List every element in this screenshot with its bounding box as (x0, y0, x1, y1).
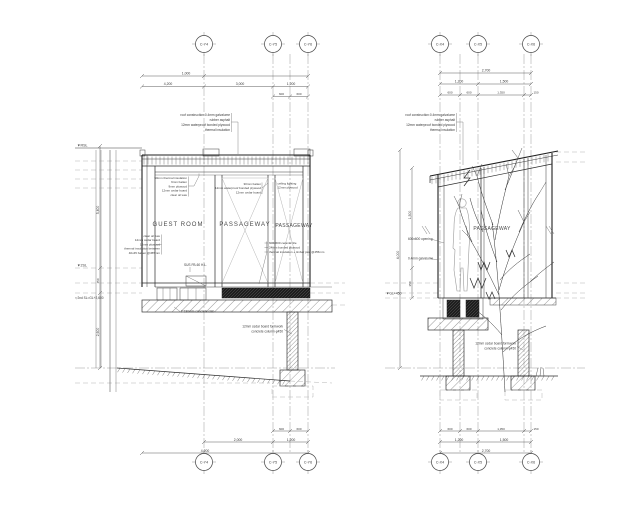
room-labels: GUEST ROOM PASSAGEWAY PASSAGEWAY PASSAGE… (153, 222, 511, 232)
callout-line: 12mm plywood (278, 186, 299, 190)
floor-grating (447, 300, 460, 317)
footing-buried (505, 390, 542, 400)
grid-marker: C-X6 (519, 32, 543, 56)
dim-label: 2,000 (234, 438, 243, 442)
drawing-sheet: C-Y4 C-Y5 C-Y6 C-X4 C-X5 C-X6 (0, 0, 630, 505)
opening-note: 600x600 opening (408, 237, 433, 241)
floor-grating (466, 300, 479, 317)
dim-label: 4,000 (396, 251, 400, 260)
dim-label: 2,700 (482, 69, 491, 73)
dim-label: 600 (279, 92, 284, 96)
dim-label: 1,200 (455, 80, 464, 84)
slab-note: t=180mm concrete slab (181, 310, 214, 314)
grid-marker: C-Y5 (261, 450, 285, 474)
callout-line: clear oil wax (170, 193, 187, 197)
room-label-guest-room: GUEST ROOM (153, 222, 204, 228)
dim-label: 600 (296, 92, 301, 96)
dim-label: 2,600 (96, 328, 100, 337)
floor-grating (222, 288, 310, 298)
grid-marker: C-Y5 (261, 32, 285, 56)
footing (446, 376, 470, 390)
dim-label: 1,200 (287, 82, 296, 86)
column-note: 12mm cedar board formwork (242, 325, 283, 329)
dim-label: 150 (533, 427, 538, 431)
dim-label: 600 (466, 91, 471, 95)
callout-line: thermal insulation + timber joist @455mm (269, 250, 325, 254)
floor-framing (180, 288, 206, 300)
section-detail-drawing: C-Y4 C-Y5 C-Y6 C-X4 C-X5 C-X6 (0, 0, 630, 505)
grid-label: C-Y4 (200, 460, 208, 464)
grid-marker: C-Y6 (296, 32, 320, 56)
dim-label: 150 (533, 91, 538, 95)
dim-label: 1,500 (408, 211, 412, 220)
dimension-lines (98, 71, 533, 455)
room-label-passageway: PASSAGEWAY (219, 222, 270, 228)
column-note: concrete column φ450 (484, 347, 516, 351)
callout-line: 12mm cedar board (236, 190, 262, 194)
concrete-slab (142, 300, 332, 312)
dim-label: 600 (296, 427, 301, 431)
dim-label: 1,000 (182, 72, 191, 76)
dim-label: 3,000 (236, 82, 245, 86)
footing-buried (440, 390, 477, 400)
level-note: ▽2nd SL=GL+2,600 (75, 296, 104, 300)
grid-label: C-X6 (527, 460, 535, 464)
concrete-column (287, 312, 298, 370)
dimension-labels: 1,000 4,200 3,000 1,200 600 600 600 600 … (96, 69, 539, 454)
human-figure (453, 199, 470, 291)
dim-label: 1,350 (497, 427, 505, 431)
grid-bubbles: C-Y4 C-Y5 C-Y6 C-X4 C-X5 C-X6 (192, 32, 543, 474)
grid-label: C-X4 (436, 460, 444, 464)
right-section (420, 148, 558, 400)
grid-label: C-X5 (474, 42, 482, 46)
galvalume-note: 0.4mm galvalume (408, 257, 433, 261)
grid-label: C-Y6 (304, 42, 312, 46)
floor-slab-edge (490, 298, 556, 305)
callout-line: thermal insulation (205, 128, 230, 132)
grid-centerlines (204, 54, 531, 452)
level-marker: ▼RSL (77, 144, 88, 148)
grid-marker: C-X6 (519, 450, 543, 474)
grid-marker: C-X4 (428, 32, 452, 56)
grid-label: C-Y4 (200, 42, 208, 46)
level-marker: ▼2SL (77, 264, 87, 268)
ground-line (117, 368, 290, 381)
concrete-column (453, 330, 464, 376)
grid-label: C-X5 (474, 460, 482, 464)
dim-label: 2,700 (482, 449, 491, 453)
dim-label: 600 (447, 427, 452, 431)
roof-deck-hatch (144, 153, 552, 184)
room-label-passageway: PASSAGEWAY (473, 226, 511, 232)
grid-label: C-Y6 (304, 460, 312, 464)
dim-label: 4,200 (201, 449, 210, 453)
callout-line: rubber asphalt (435, 118, 455, 122)
ground-hatch (118, 368, 555, 384)
grid-label: C-X6 (527, 42, 535, 46)
callout-line: 40x45 batten @455mm (129, 251, 161, 255)
tree (454, 148, 554, 392)
handrail-note: SUS FB-60 H.L. (184, 263, 207, 267)
dim-label: 4,200 (164, 82, 173, 86)
callout-line: roof construction:0.4mm galvalume (405, 113, 455, 117)
dim-label: 600 (279, 427, 284, 431)
grid-marker: C-X4 (428, 450, 452, 474)
callout-line: 12mm waterproof bonded plywood (406, 123, 455, 127)
grid-marker: C-Y6 (296, 450, 320, 474)
footing (280, 370, 305, 386)
dim-label: 1,200 (287, 438, 296, 442)
dim-label: 1,500 (500, 80, 509, 84)
dim-label: 1,350 (497, 91, 505, 95)
level-marker: ▼GL+450 (386, 292, 402, 296)
callout-line: thermal insulation (430, 128, 455, 132)
grid-marker: C-Y4 (192, 450, 216, 474)
footing-buried (272, 386, 313, 397)
callout-line: rubber asphalt (210, 118, 230, 122)
column-note: concrete column φ450 (251, 330, 283, 334)
room-label-passageway: PASSAGEWAY (275, 223, 313, 229)
dim-label: 600 (466, 427, 471, 431)
grid-label: C-Y5 (269, 42, 277, 46)
dim-label: 1,500 (500, 438, 509, 442)
callout-line: 24mm bonded plywood (269, 246, 300, 250)
callout-line: 12mm waterproof bonded plywood (181, 123, 230, 127)
concrete-slab (428, 318, 488, 330)
grid-marker: C-X5 (466, 450, 490, 474)
column-note: 12mm cedar board formwork (475, 342, 516, 346)
grid-label: C-X4 (436, 42, 444, 46)
footing (511, 376, 535, 390)
dim-label: 1,200 (455, 438, 464, 442)
opening-cross-brace (222, 178, 303, 283)
callout-line: 600x600 ceramic tile (269, 241, 297, 245)
grid-marker: C-Y4 (192, 32, 216, 56)
callout-line: roof construction:0.4mm galvalume (180, 113, 230, 117)
dim-label: 450 (96, 278, 100, 283)
dim-label: 5,400 (96, 206, 100, 215)
dim-label: 350 (408, 281, 412, 286)
grid-marker: C-X5 (466, 32, 490, 56)
dim-label: 600 (447, 91, 452, 95)
grid-label: C-Y5 (269, 460, 277, 464)
floor-framing (157, 288, 177, 300)
